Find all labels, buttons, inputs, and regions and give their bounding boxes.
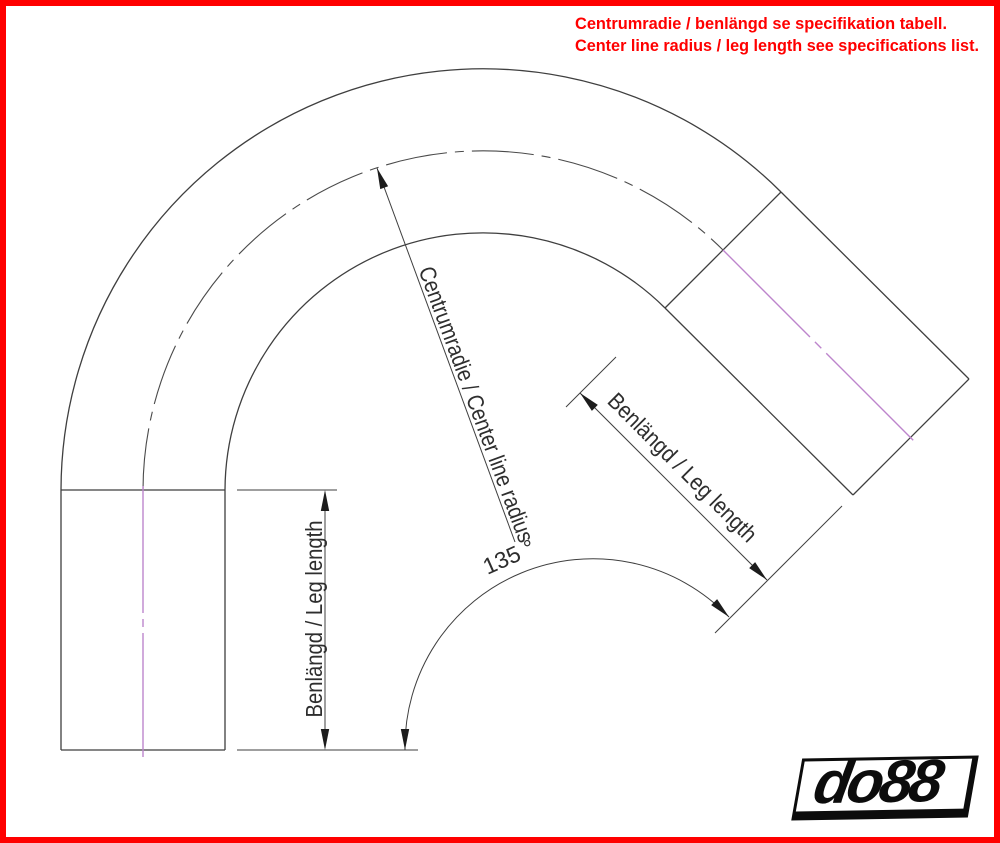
right-leg-end-cap — [853, 379, 969, 495]
right-leg-centerline — [723, 250, 915, 442]
red-frame-border — [3, 3, 997, 840]
left-leg-length-label: Benlängd / Leg length — [301, 521, 327, 718]
notice-line-english: Center line radius / leg length see spec… — [575, 37, 979, 55]
drawing-canvas: Centrumradie / benlängd se specifikation… — [0, 0, 1000, 843]
right-leg-outer-edge — [781, 192, 969, 379]
inner-arc — [225, 233, 665, 490]
dimension-lines — [237, 168, 842, 750]
do88-logo-text: do88 — [796, 754, 973, 811]
left-dim-arrow-top — [321, 490, 329, 511]
arrowheads — [321, 167, 770, 750]
notice-line-swedish: Centrumradie / benlängd se specifikation… — [575, 15, 947, 33]
do88-logo: do88 — [791, 755, 979, 820]
right-dim-line — [580, 393, 767, 580]
elbow-diagram: Centrumradie / benlängd se specifikation… — [0, 0, 1000, 843]
hose-outline — [61, 69, 969, 750]
angle-arc-arrow-left — [401, 729, 409, 750]
angle-arc-arrow-right — [711, 599, 732, 620]
left-dim-arrow-bottom — [321, 729, 329, 750]
radius-dim-arrow — [373, 167, 388, 190]
right-dim-arrow-lower — [749, 562, 770, 583]
angle-dim-arc — [405, 559, 729, 750]
notice-text: Centrumradie / benlängd se specifikation… — [575, 15, 979, 55]
right-leg-length-label: Benlängd / Leg length — [603, 387, 763, 547]
angle-label: 135 ° — [479, 534, 539, 580]
center-radius-label: Centrumradie / Center line radius — [414, 263, 540, 546]
right-dim-arrow-upper — [577, 390, 598, 411]
